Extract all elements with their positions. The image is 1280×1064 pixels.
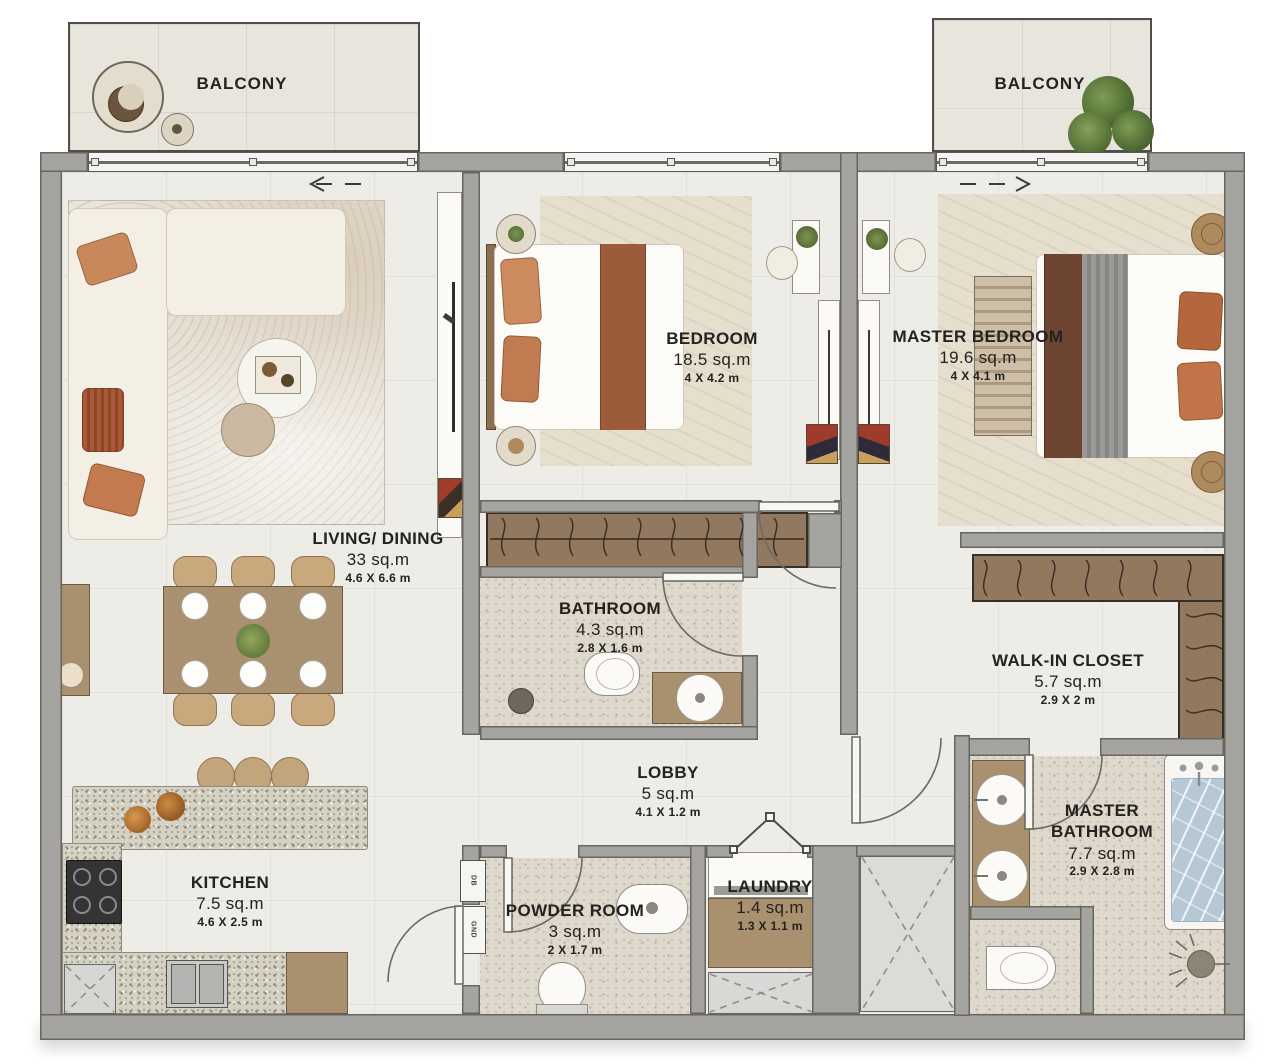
wall [780,152,936,172]
plate [239,660,267,688]
closet-rail-right [1178,600,1224,742]
plant-icon [1068,112,1112,156]
toilet-seat [1000,952,1048,984]
sink-basin [199,964,224,1004]
wall [1224,152,1245,1030]
kitchen-island [72,786,368,850]
window-mullion [567,158,575,166]
shaft [860,855,956,1012]
label-powder-room: POWDER ROOM 3 sq.m 2 X 1.7 m [480,900,670,958]
window-mullion [939,158,947,166]
master-bathroom-name: MASTER BATHROOM [1027,800,1177,843]
wall [742,512,758,578]
desk-plant-icon [796,226,818,248]
desk-chair [894,238,926,272]
wall [578,845,692,858]
desk-plant-icon [866,228,888,250]
walkin-dims: 2.9 X 2 m [968,693,1168,708]
laundry-name: LAUNDRY [700,876,840,897]
label-master-bedroom: MASTER BEDROOM 19.6 sq.m 4 X 4.1 m [863,326,1093,384]
window-mullion [1037,158,1045,166]
bathroom-dims: 2.8 X 1.6 m [520,641,700,656]
hanging-chair-cushion [118,84,144,110]
living-area: 33 sq.m [263,549,493,570]
side-table-ring [1201,223,1223,245]
plant-icon [1112,110,1154,152]
master-bathroom-area: 7.7 sq.m [1027,843,1177,864]
lobby-name: LOBBY [588,762,748,783]
label-bathroom: BATHROOM 4.3 sq.m 2.8 X 1.6 m [520,598,700,656]
panel-line [828,330,830,430]
plate [181,660,209,688]
fruit-bowl [156,792,185,821]
balcony-right-label: BALCONY [994,74,1085,94]
kitchen-name: KITCHEN [140,872,320,893]
wall [808,513,842,568]
label-lobby: LOBBY 5 sq.m 4.1 X 1.2 m [588,762,748,820]
wall [742,655,758,735]
toilet-seat [596,658,634,690]
wall [1148,152,1245,172]
plate [239,592,267,620]
powder-area: 3 sq.m [480,921,670,942]
burner [99,896,117,914]
dining-chair [231,692,275,726]
master-bathroom-dims: 2.9 X 2.8 m [1027,864,1177,879]
balcony-left-label: BALCONY [196,74,287,94]
bathroom-name: BATHROOM [520,598,700,619]
window-mullion [667,158,675,166]
side-table-ring [1201,461,1223,483]
db-panel: DB [460,860,486,902]
window-mullion [249,158,257,166]
master-bedroom-dims: 4 X 4.1 m [863,369,1093,384]
window [936,152,1148,172]
wall [480,500,762,513]
wall [840,152,858,735]
db-panel-label: DB [470,875,477,886]
floor-plan: BALCONY BALCONY [0,0,1280,1064]
dining-chair [291,692,335,726]
wall [834,500,842,513]
wall [954,735,970,1016]
wall [462,172,480,735]
sink-drain [997,871,1007,881]
floor-mat [438,478,464,518]
fruit-bowl [124,806,151,833]
pedestal-plant-icon [508,688,534,714]
plate [181,592,209,620]
wall [480,845,507,858]
dining-chair [173,692,217,726]
wall [1100,738,1224,756]
pillow [500,335,541,403]
floor-mat [858,424,890,464]
wall [40,1014,1245,1040]
label-laundry: LAUNDRY 1.4 sq.m 1.3 X 1.1 m [700,876,840,934]
window-mullion [407,158,415,166]
kitchen-area: 7.5 sq.m [140,893,320,914]
tray-dish [281,374,294,387]
burner [73,896,91,914]
bedroom-dims: 4 X 4.2 m [612,371,812,386]
plate [299,592,327,620]
label-walkin-closet: WALK-IN CLOSET 5.7 sq.m 2.9 X 2 m [968,650,1168,708]
side-table [221,403,275,457]
plate [299,660,327,688]
powder-name: POWDER ROOM [480,900,670,921]
window-mullion [91,158,99,166]
balcony-table-decor [172,124,182,134]
kitchen-dims: 4.6 X 2.5 m [140,915,320,930]
wardrobe-rail [486,512,808,568]
closet-rail-top [972,554,1224,602]
powder-dims: 2 X 1.7 m [480,943,670,958]
sofa-chaise [166,208,346,316]
lobby-area: 5 sq.m [588,783,748,804]
wall [856,845,956,857]
sink-drain [997,795,1007,805]
master-bedroom-name: MASTER BEDROOM [863,326,1093,347]
label-living: LIVING/ DINING 33 sq.m 4.6 X 6.6 m [263,528,493,586]
sink-basin [171,964,196,1004]
window [88,152,418,172]
nightstand-decor [508,438,524,454]
label-kitchen: KITCHEN 7.5 sq.m 4.6 X 2.5 m [140,872,320,930]
floor-mat [806,424,838,464]
living-dims: 4.6 X 6.6 m [263,571,493,586]
window-mullion [1137,158,1145,166]
dining-chair [173,556,217,590]
bedroom-name: BEDROOM [612,328,812,349]
burner [99,868,117,886]
kitchen-cabinet [286,952,348,1014]
pillow [500,257,543,325]
burner [73,868,91,886]
wall [1080,906,1094,1014]
kitchen-shaft [64,964,116,1014]
pillow [1177,291,1224,351]
wall [462,985,480,1014]
coffee-table-tray [255,356,301,394]
gnd-panel-label: GND [470,921,477,938]
laundry-dims: 1.3 X 1.1 m [700,919,840,934]
label-master-bathroom: MASTER BATHROOM 7.7 sq.m 2.9 X 2.8 m [1027,800,1177,879]
pillow [1177,361,1224,421]
lobby-dims: 4.1 X 1.2 m [588,805,748,820]
wall [706,845,733,858]
laundry-shaft [708,972,814,1014]
wall [40,152,88,172]
wall [40,152,62,1038]
walkin-area: 5.7 sq.m [968,671,1168,692]
tv-icon [452,282,455,432]
table-plant-icon [236,624,270,658]
bathroom-area: 4.3 sq.m [520,619,700,640]
wall [480,566,758,578]
bathtub-water [1171,778,1229,922]
label-bedroom: BEDROOM 18.5 sq.m 4 X 4.2 m [612,328,812,386]
living-name: LIVING/ DINING [263,528,493,549]
window [564,152,780,172]
walkin-name: WALK-IN CLOSET [968,650,1168,671]
desk-chair [766,246,798,280]
wall [418,152,564,172]
master-bedroom-area: 19.6 sq.m [863,347,1093,368]
window-mullion [769,158,777,166]
wall [960,532,1224,548]
wall [480,726,758,740]
pillow [82,388,124,452]
wall [970,906,1092,920]
sink-drain [695,693,705,703]
tray-dish [262,362,277,377]
shower-head-icon [1187,950,1215,978]
laundry-area: 1.4 sq.m [700,897,840,918]
bedroom-area: 18.5 sq.m [612,349,812,370]
nightstand-plant-icon [508,226,524,242]
